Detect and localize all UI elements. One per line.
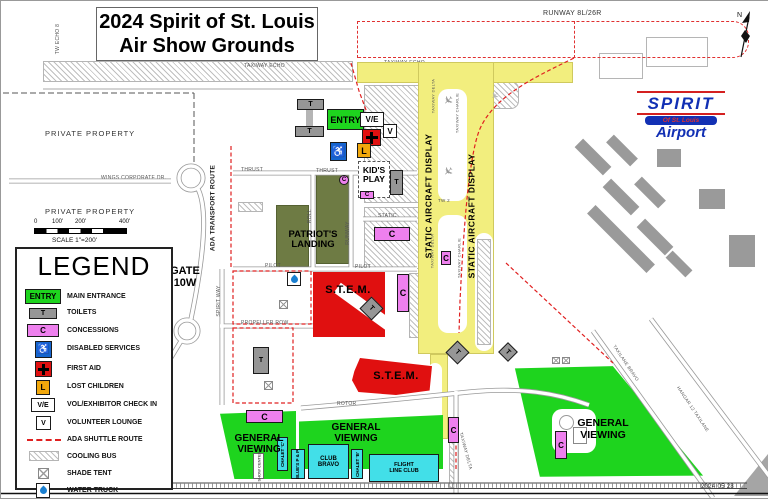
legend-water-label: WATER TRUCK [67,487,118,494]
show-center: SHOW CENTER [253,453,264,479]
legend-concession-label: CONCESSIONS [67,327,119,334]
scale-caption: SCALE 1"=200' [52,237,97,244]
street-pilot-label: PILOT [355,264,371,270]
date-stamp: 2024 05 28 [701,484,734,490]
concession-marker: C [397,274,409,312]
c-text: C [558,441,564,450]
t-text: T [368,305,376,313]
static-display-label: STATIC AIRCRAFT DISPLAY [424,134,433,259]
wheelchair-glyph: ♿ [37,344,49,355]
concession-marker: C [246,410,283,423]
main-entrance-marker: ENTRY [327,109,364,130]
legend-firstaid-label: FIRST AID [67,365,101,372]
taxiway-echo-label: TAXIWAY ECHO [244,63,285,69]
legend-disabled-label: DISABLED SERVICES [67,345,140,352]
hangar-building [587,205,655,273]
t-text: T [259,357,263,364]
airport-logo: SPIRIT Of St. Louis Airport [631,89,731,141]
scale-tick-200: 200' [75,219,86,225]
wheelchair-glyph: ♿ [332,145,346,158]
c-text: C [261,412,268,422]
property-boundary [3,93,194,163]
airshow-grounds-map: ✈ ✈ ✈ PATRIOT'S LANDING S.T.E.M. S.T.E.M… [0,0,768,499]
c-text: C [365,192,369,198]
compass-north-label: N [737,12,742,19]
street-runway-label: RUNWAY [345,221,351,244]
legend-ada-swatch [27,439,61,441]
legend-entry-swatch: ENTRY [25,289,61,304]
show-center-label: SHOW CENTER [256,451,261,481]
logo-airport: Airport [631,125,731,142]
taxiway-delta-label: TAXIWAY DELTA [459,432,474,470]
ve-swatch-text: V/E [37,402,48,409]
street-spirit-way-label: SPIRIT WAY [216,285,222,316]
toilet-swatch-text: T [41,310,45,317]
concession-marker: C [360,191,374,199]
club-bravo-label: CLUB BRAVO [316,456,342,468]
volunteer-lounge-marker: V [383,124,397,138]
legend-toilet-swatch: T [29,308,57,319]
v-text: V [387,127,392,136]
legend-disabled-swatch wheelchair-icon: ♿ [35,341,52,358]
blues-pp-label: BLUE'S P & P [296,449,301,478]
c-text: C [443,254,449,263]
hangar-building [666,251,693,278]
legend-cooling-swatch [29,451,59,461]
shade-tent-marker shade-tent-icon [264,381,273,390]
toilet-marker: T [390,170,403,195]
chalet-b: CHALET 'B' [351,449,363,479]
scale-bar: 0 100' 200' 400' SCALE 1"=200' [34,219,134,245]
building [729,235,755,267]
legend-firstaid-swatch first-aid-icon [35,361,52,377]
concession-marker: C [339,175,349,185]
toilet-marker: T [295,126,324,137]
v-swatch-text: V [41,420,46,427]
stem-north-label: S.T.E.M. [317,284,379,296]
parking-rows [477,239,491,345]
concession-swatch-text: C [40,326,46,335]
t-text: T [307,128,311,135]
wings-corporate-label: WINGS CORPORATE DR. [99,175,168,181]
street-static-label: STATIC [378,213,397,219]
concession-marker: C [374,227,410,241]
legend-ada-label: ADA SHUTTLE ROUTE [67,436,143,443]
legend-cooling-label: COOLING BUS [67,453,116,460]
aircraft-parking-strip [43,61,353,82]
toilet-marker: T [498,342,518,362]
toilet-marker: T [297,99,324,110]
logo-name: SPIRIT [631,95,731,112]
legend-concession-swatch: C [27,324,59,337]
flight-line-club: FLIGHT LINE CLUB [369,454,439,482]
hangar-building [637,219,674,256]
stem-south-label: S.T.E.M. [361,370,431,382]
t-text: T [504,348,512,356]
gv-center-label: GENERAL VIEWING [321,422,391,444]
ve-text: V/E [366,115,379,124]
legend-volunteer-swatch: V [36,416,51,430]
scale-tick-0: 0 [34,219,37,225]
private-property-label: PRIVATE PROPERTY [45,207,135,216]
map-title-line2: Air Show Grounds [119,34,295,58]
ada-transport-route-label: ADA TRANSPORT ROUTE [210,165,217,251]
display-island [438,89,467,201]
shade-tent-marker shade-tent-icon [562,357,570,364]
private-property-label: PRIVATE PROPERTY [45,129,135,138]
tw-echo8-label: TW ECHO 8 [55,24,61,54]
legend-volunteer-label: VOLUNTEER LOUNGE [67,419,142,426]
vol-exhibitor-checkin-marker: V/E [360,112,384,127]
legend-shade-label: SHADE TENT [67,470,112,477]
building [657,149,681,167]
logo-subtitle: Of St. Louis [663,117,699,124]
patriots-landing-label: PATRIOT'S LANDING [277,230,349,251]
c-text: C [389,229,396,239]
street-thrust-label: THRUST [241,167,263,173]
crowd-line [96,483,747,489]
legend-lost-swatch: L [36,380,50,395]
club-bravo: CLUB BRAVO [308,444,349,479]
legend-title: LEGEND [17,251,171,282]
logo-stripe [637,91,725,93]
legend-ve-label: VOL/EXHIBITOR CHECK IN [67,401,157,408]
scale-tick-400: 400' [119,219,130,225]
water-truck-marker [287,272,301,286]
disabled-services-marker: ♿ [330,142,347,161]
scale-bar-rule [34,228,127,234]
hangar-building [634,177,666,209]
c-text: C [400,288,407,298]
street-pilot-label: PILOT [265,263,281,269]
street-thrust-label: THRUST [316,168,338,174]
street-rotor-label: ROTOR [337,401,356,407]
legend-entry-label: MAIN ENTRANCE [67,293,126,300]
taxiway-charlie-label: TAXIWAY CHARLIE [457,238,462,278]
building-corner [734,454,768,496]
lost-children-marker: L [357,143,371,158]
building [699,189,725,209]
entry-swatch-text: ENTRY [30,292,57,301]
hangar-building [575,139,612,176]
toilet-marker: T [253,347,269,374]
c-text: C [342,177,346,183]
static-display-label: STATIC AIRCRAFT DISPLAY [467,154,476,279]
c-text: C [451,426,457,435]
legend-lost-label: LOST CHILDREN [67,383,124,390]
lost-swatch-text: L [41,383,46,392]
concession-marker: C [441,251,451,265]
legend-ve-swatch: V/E [31,398,55,412]
scale-tick-100: 100' [52,219,63,225]
street-propeller-label: PROPELLER ROW [241,320,289,326]
l-text: L [361,146,367,156]
legend-water-swatch water-truck-icon [36,483,50,498]
concession-marker: C [555,431,567,459]
t-text: T [394,179,398,186]
hangar12-taxilane-label: HANGAR 12 TAXILANE [676,385,710,432]
flight-line-label: FLIGHT LINE CLUB [389,462,419,474]
runway-label: RUNWAY 8L/26R [543,10,602,17]
entry-text: ENTRY [330,115,360,125]
concession-marker: C [448,417,459,443]
cooling-bus-marker [238,202,263,212]
kids-play-label: KID'S PLAY [359,166,389,185]
street-roll-label: ROLL [307,209,313,223]
map-title: 2024 Spirit of St. Louis Air Show Ground… [96,7,318,61]
legend-toilet-label: TOILETS [67,309,96,316]
t-text: T [308,101,312,108]
t-text: T [454,349,462,357]
legend-shade-swatch shade-tent-icon [38,468,49,479]
tw2-label: TW 2 [438,198,450,203]
chalet-b-label: CHALET 'B' [355,452,360,477]
shade-tent-marker shade-tent-icon [552,357,560,364]
gv-east-label: GENERAL VIEWING [563,418,643,441]
taxiway-delta-label: TAXIWAY DELTA [431,79,436,114]
runway-boundary [357,21,749,58]
shade-tent-marker shade-tent-icon [279,300,288,309]
gv-west-label: GENERAL VIEWING [222,433,296,455]
runway-boundary-divider [574,21,575,58]
legend-panel: LEGEND ENTRY MAIN ENTRANCE T TOILETS C C… [15,247,173,490]
building [306,110,313,126]
taxiway-charlie-label: TAXIWAY CHARLIE [455,93,460,133]
logo-stripe [637,113,725,115]
map-title-line1: 2024 Spirit of St. Louis [99,10,315,34]
display-island [438,215,467,333]
